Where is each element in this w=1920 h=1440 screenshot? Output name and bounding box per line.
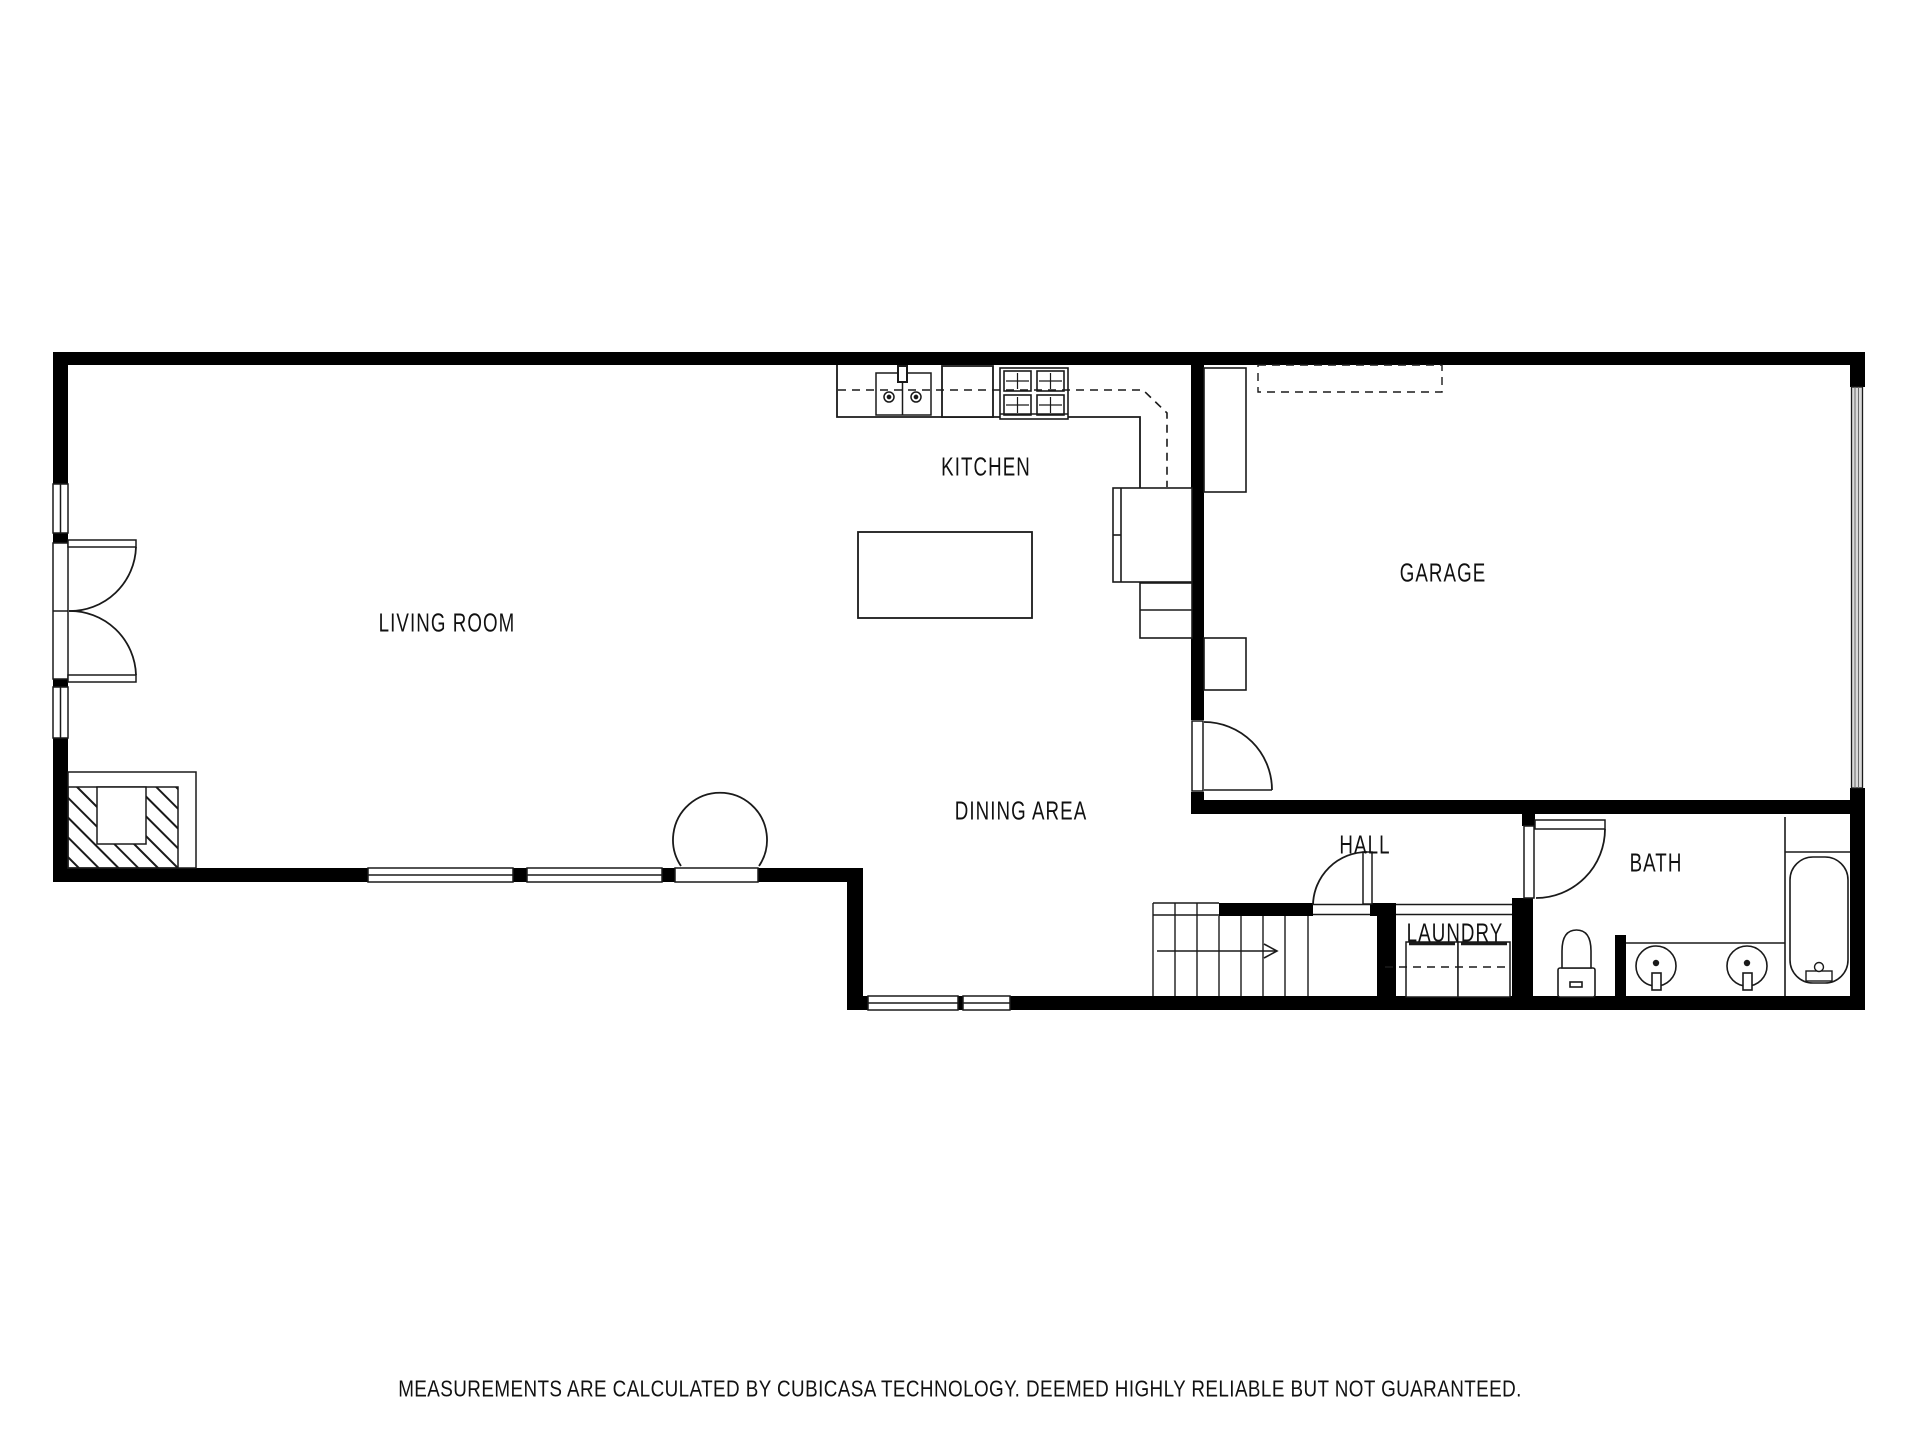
entry-door bbox=[673, 793, 767, 882]
fireplace-icon bbox=[68, 772, 196, 868]
room-label-living-room: LIVING ROOM bbox=[379, 608, 516, 639]
room-label-garage: GARAGE bbox=[1400, 558, 1487, 589]
kitchen-island-icon bbox=[858, 532, 1032, 618]
hall-door bbox=[1313, 852, 1372, 916]
room-label-dining-area: DINING AREA bbox=[955, 796, 1088, 827]
garage-entry-door bbox=[1191, 720, 1272, 792]
stove-icon bbox=[1000, 368, 1068, 419]
washer-dryer-icons bbox=[1385, 942, 1510, 997]
bathtub-icon bbox=[1785, 817, 1850, 996]
garage-vehicle-door bbox=[1850, 387, 1865, 788]
disclaimer-text: MEASUREMENTS ARE CALCULATED BY CUBICASA … bbox=[398, 1376, 1522, 1403]
room-label-laundry: LAUNDRY bbox=[1407, 918, 1504, 949]
room-label-kitchen: KITCHEN bbox=[941, 452, 1031, 483]
french-doors bbox=[53, 540, 136, 682]
garage-utility-units bbox=[1204, 368, 1246, 690]
floor-plan-drawing bbox=[0, 0, 1920, 1440]
stairs bbox=[1153, 903, 1308, 996]
vanity-sinks-icon bbox=[1626, 943, 1785, 990]
interior-walls bbox=[1191, 352, 1865, 1010]
bath-door bbox=[1522, 820, 1605, 898]
room-label-bath: BATH bbox=[1630, 848, 1683, 879]
toilet-icon bbox=[1558, 930, 1595, 997]
room-label-hall: HALL bbox=[1339, 830, 1390, 861]
garage-storage-dashed bbox=[1258, 365, 1442, 392]
floor-plan-page: LIVING ROOM KITCHEN GARAGE DINING AREA H… bbox=[0, 0, 1920, 1440]
refrigerator-icon bbox=[1113, 488, 1192, 582]
laundry-opening bbox=[1396, 903, 1512, 916]
kitchen-cabinet-icon bbox=[1140, 583, 1192, 638]
dishwasher-icon bbox=[942, 366, 993, 417]
